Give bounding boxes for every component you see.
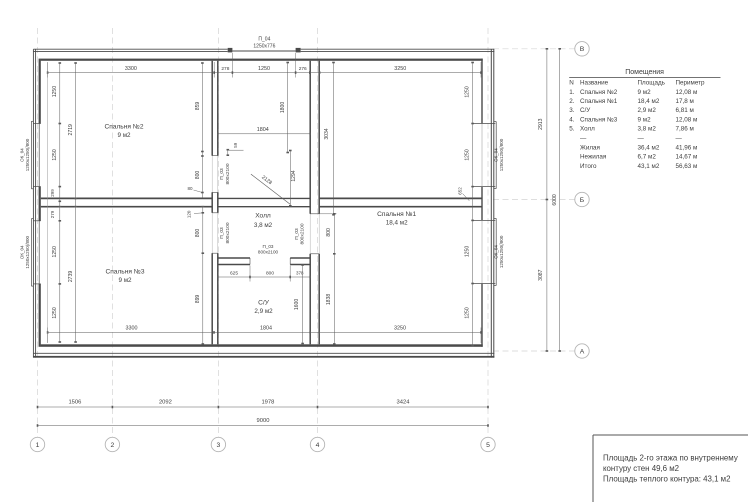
svg-text:1600: 1600 — [294, 299, 300, 310]
svg-text:3.: 3. — [569, 107, 575, 114]
svg-text:3300: 3300 — [125, 66, 137, 72]
svg-text:1804: 1804 — [257, 127, 269, 133]
svg-text:—: — — [580, 135, 587, 142]
svg-text:1250х1250(/800: 1250х1250(/800 — [499, 235, 504, 268]
svg-text:контуру стен 49,6 м2: контуру стен 49,6 м2 — [603, 464, 679, 473]
svg-text:1250: 1250 — [52, 307, 58, 318]
svg-text:18,4 м2: 18,4 м2 — [638, 98, 660, 105]
svg-text:800: 800 — [326, 228, 332, 237]
svg-text:3034: 3034 — [324, 128, 330, 139]
svg-text:14,67 м: 14,67 м — [676, 154, 698, 161]
svg-text:Нежилая: Нежилая — [580, 154, 606, 161]
svg-text:800х2100: 800х2100 — [225, 222, 231, 243]
svg-text:3250: 3250 — [394, 326, 406, 332]
svg-text:1250: 1250 — [52, 149, 58, 160]
svg-text:Площадь теплого контура: 43,1: Площадь теплого контура: 43,1 м2 — [603, 475, 730, 484]
svg-text:Спальня №2: Спальня №2 — [580, 89, 618, 96]
svg-text:859: 859 — [195, 102, 201, 111]
svg-text:9 м2: 9 м2 — [117, 132, 131, 139]
svg-text:3087: 3087 — [538, 269, 544, 280]
svg-text:652: 652 — [457, 187, 462, 195]
svg-text:3,8 м2: 3,8 м2 — [254, 222, 273, 229]
svg-text:1804: 1804 — [260, 326, 272, 332]
svg-text:800х2100: 800х2100 — [300, 223, 306, 244]
svg-text:1250: 1250 — [465, 86, 471, 97]
svg-text:Название: Название — [580, 79, 609, 86]
svg-text:17,8 м: 17,8 м — [676, 98, 694, 105]
svg-text:2719: 2719 — [68, 124, 74, 135]
svg-text:ОК_04: ОК_04 — [20, 245, 25, 259]
svg-text:П_03: П_03 — [263, 244, 274, 249]
svg-text:43,1 м2: 43,1 м2 — [638, 163, 660, 170]
svg-text:800х2100: 800х2100 — [258, 249, 279, 254]
svg-text:Периметр: Периметр — [676, 79, 706, 86]
svg-text:Спальня №2: Спальня №2 — [104, 124, 143, 131]
svg-text:41,96 м: 41,96 м — [676, 144, 698, 151]
svg-text:1: 1 — [36, 442, 40, 449]
svg-text:—: — — [676, 135, 683, 142]
svg-text:С/У: С/У — [580, 107, 591, 114]
svg-text:ОК_04: ОК_04 — [493, 148, 498, 162]
svg-text:7,86 м: 7,86 м — [676, 126, 694, 133]
svg-text:1978: 1978 — [261, 400, 274, 406]
svg-text:1250х1250(/800: 1250х1250(/800 — [499, 138, 504, 171]
svg-text:Площадь: Площадь — [638, 79, 666, 86]
svg-text:18,4 м2: 18,4 м2 — [386, 219, 408, 226]
svg-text:П_03: П_03 — [219, 168, 225, 180]
svg-text:3300: 3300 — [126, 326, 138, 332]
svg-text:800: 800 — [266, 270, 274, 276]
svg-text:6,81 м: 6,81 м — [676, 107, 694, 114]
svg-text:1250: 1250 — [465, 246, 471, 257]
svg-text:Спальня №3: Спальня №3 — [580, 116, 618, 123]
svg-text:Холл: Холл — [580, 126, 595, 133]
svg-text:Б: Б — [580, 197, 585, 204]
svg-text:625: 625 — [230, 270, 238, 276]
svg-text:278: 278 — [221, 66, 229, 72]
svg-text:2,9 м2: 2,9 м2 — [254, 308, 273, 315]
svg-text:ОК_04: ОК_04 — [20, 148, 25, 162]
svg-text:П_03: П_03 — [294, 228, 300, 240]
svg-text:1250: 1250 — [465, 149, 471, 160]
svg-text:5: 5 — [486, 442, 490, 449]
svg-text:2,9 м2: 2,9 м2 — [638, 107, 657, 114]
svg-text:9 м2: 9 м2 — [638, 89, 652, 96]
svg-text:Спальня №1: Спальня №1 — [377, 211, 416, 218]
svg-text:3250: 3250 — [394, 66, 406, 72]
svg-text:3: 3 — [217, 442, 221, 449]
svg-text:1250: 1250 — [465, 307, 471, 318]
svg-text:299: 299 — [50, 189, 55, 197]
svg-text:П_04: П_04 — [258, 36, 270, 42]
svg-text:—: — — [638, 135, 645, 142]
svg-text:6,7 м2: 6,7 м2 — [638, 154, 657, 161]
svg-text:Итого: Итого — [580, 163, 597, 170]
svg-text:36,4 м2: 36,4 м2 — [638, 144, 660, 151]
svg-text:9 м2: 9 м2 — [638, 116, 652, 123]
svg-text:2.: 2. — [569, 98, 575, 105]
svg-text:1250: 1250 — [258, 66, 270, 72]
svg-text:276: 276 — [299, 66, 307, 72]
svg-text:ОК_04: ОК_04 — [493, 245, 498, 259]
svg-text:12,08 м: 12,08 м — [676, 116, 698, 123]
svg-text:С/У: С/У — [258, 299, 270, 306]
svg-text:800: 800 — [195, 229, 201, 238]
svg-text:1250х776: 1250х776 — [253, 43, 275, 49]
svg-text:П_03: П_03 — [219, 227, 225, 239]
svg-text:899: 899 — [195, 295, 201, 304]
svg-text:4: 4 — [316, 442, 320, 449]
svg-text:9000: 9000 — [257, 418, 270, 424]
svg-text:Площадь 2-го этажа по внутренн: Площадь 2-го этажа по внутреннему — [603, 454, 738, 463]
svg-text:59: 59 — [233, 142, 238, 148]
svg-text:800х2100: 800х2100 — [225, 163, 231, 184]
svg-text:120: 120 — [187, 210, 192, 218]
svg-text:56,63 м: 56,63 м — [676, 163, 698, 170]
svg-text:Холл: Холл — [255, 212, 271, 219]
svg-text:1250: 1250 — [52, 86, 58, 97]
svg-text:3,8 м2: 3,8 м2 — [638, 126, 657, 133]
svg-text:1250: 1250 — [52, 246, 58, 257]
svg-text:Жилая: Жилая — [580, 144, 600, 151]
svg-text:N: N — [569, 79, 574, 86]
svg-text:2092: 2092 — [159, 400, 172, 406]
svg-text:12,08 м: 12,08 м — [676, 89, 698, 96]
svg-text:1800: 1800 — [280, 102, 286, 113]
svg-text:Спальня №3: Спальня №3 — [105, 268, 144, 275]
svg-text:6000: 6000 — [552, 194, 558, 205]
svg-text:1250х1250(/800: 1250х1250(/800 — [25, 138, 30, 171]
svg-text:1506: 1506 — [68, 400, 81, 406]
svg-text:5.: 5. — [569, 126, 575, 133]
svg-text:3424: 3424 — [397, 400, 411, 406]
svg-text:80: 80 — [187, 186, 193, 191]
svg-text:4.: 4. — [569, 116, 575, 123]
svg-text:2: 2 — [111, 442, 115, 449]
svg-text:279: 279 — [50, 210, 55, 218]
svg-text:1.: 1. — [569, 89, 575, 96]
svg-text:9 м2: 9 м2 — [118, 277, 132, 284]
svg-text:800: 800 — [195, 171, 201, 180]
svg-text:А: А — [580, 348, 585, 355]
svg-text:1250х1250(/800: 1250х1250(/800 — [25, 236, 30, 269]
svg-text:2913: 2913 — [538, 118, 544, 129]
svg-text:1294: 1294 — [291, 170, 297, 181]
svg-text:Помещения: Помещения — [625, 69, 664, 76]
svg-text:В: В — [580, 46, 585, 53]
svg-text:Спальня №1: Спальня №1 — [580, 98, 618, 105]
svg-text:1838: 1838 — [326, 294, 332, 305]
svg-text:2739: 2739 — [68, 271, 74, 282]
